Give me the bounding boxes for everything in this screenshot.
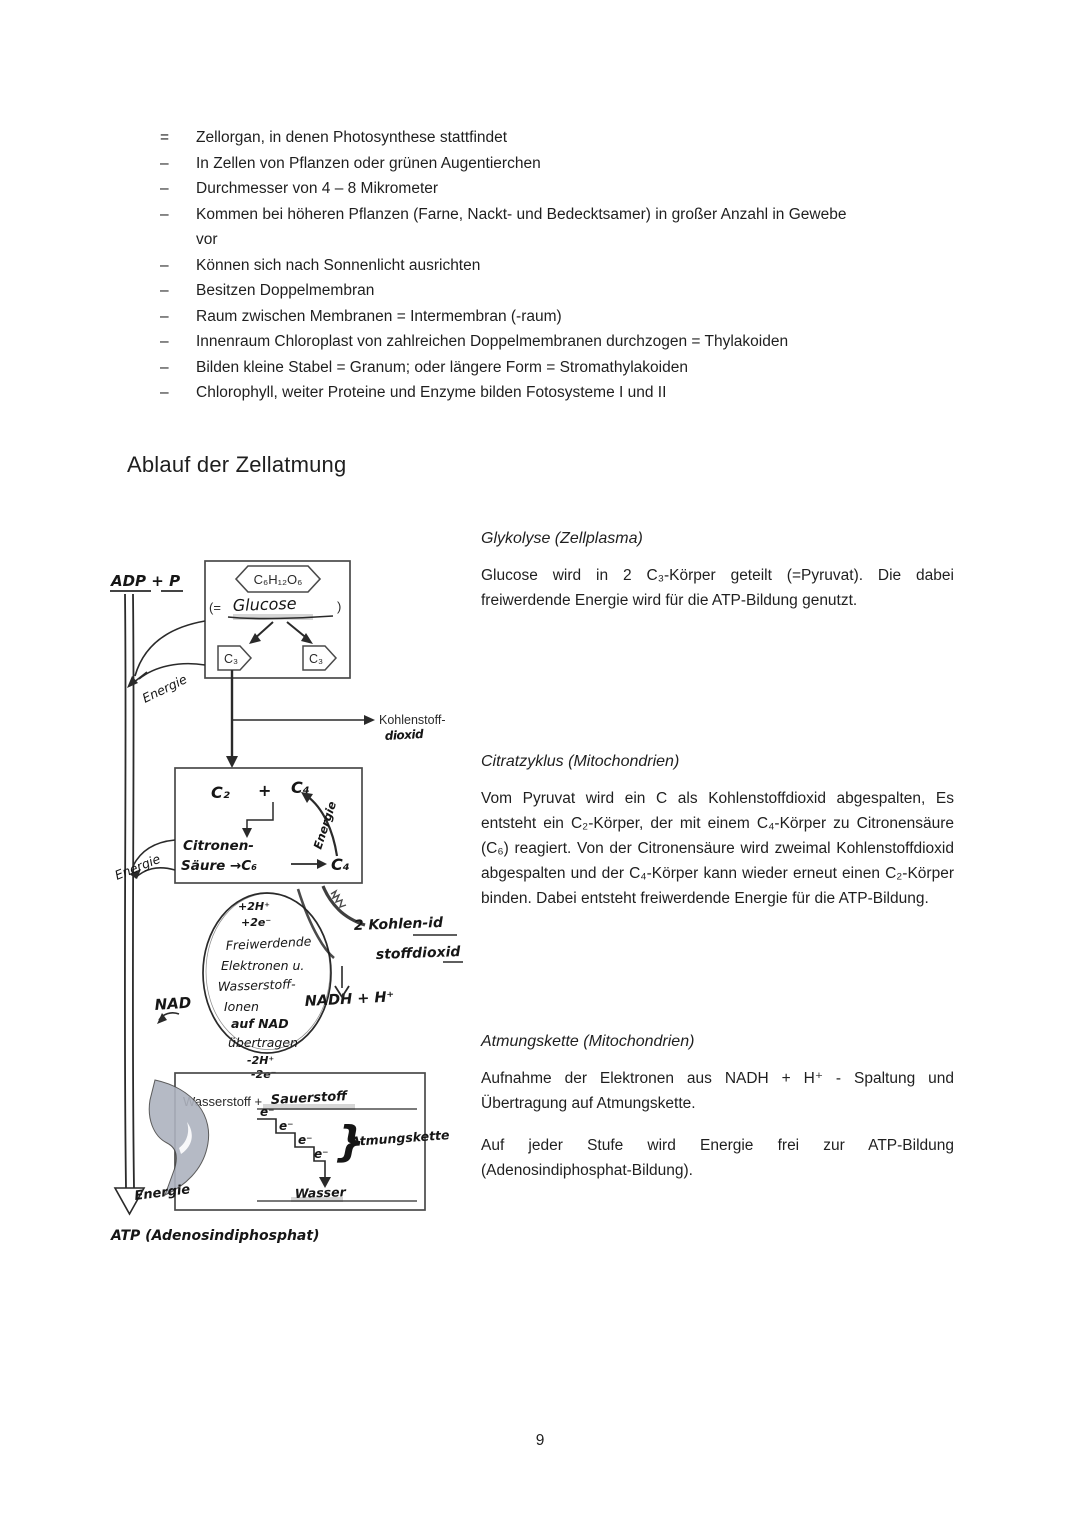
glucose-formula: C₆H₁₂O₆	[254, 572, 303, 587]
section-atmungskette: Atmungskette (Mitochondrien) Aufnahme de…	[481, 1033, 954, 1200]
oval-text-7: -2H⁺	[247, 1054, 274, 1067]
list-item: –Kommen bei höheren Pflanzen (Farne, Nac…	[160, 202, 960, 253]
list-item: –Chlorophyll, weiter Proteine und Enzyme…	[160, 380, 960, 406]
section-citratzyklus: Citratzyklus (Mitochondrien) Vom Pyruvat…	[481, 753, 954, 928]
glucose-open: (=	[209, 600, 221, 615]
atp-label: ATP (Adenosindiphosphat)	[110, 1228, 319, 1244]
citrat-c2: C₂	[211, 783, 230, 802]
adp-label: ADP + P	[110, 572, 180, 590]
section-title: Citratzyklus (Mitochondrien)	[481, 753, 954, 771]
energie-funnel-1: Energie	[127, 621, 205, 706]
co2-line-2: stoffdioxid	[376, 944, 462, 963]
oval-text-8: -2e⁻	[251, 1068, 277, 1081]
energie-label-1: Energie	[140, 671, 190, 706]
atmungskette-box: Wasserstoff + Sauerstoff e⁻ e⁻ e⁻ e⁻ } A…	[175, 1073, 450, 1210]
citronen-c4: C₄	[331, 855, 350, 874]
list-text: Zellorgan, in denen Photosynthese stattf…	[196, 125, 960, 151]
zellatmung-diagram: ADP + P C₆H₁₂O₆ (= Glucose ) C₃ C₃	[95, 548, 465, 1248]
bullet-list: =Zellorgan, in denen Photosynthese statt…	[160, 125, 960, 406]
electron-3: e⁻	[298, 1133, 312, 1147]
plus-2e-label: +2e⁻	[241, 916, 271, 929]
energie-label-3: Energie	[134, 1182, 192, 1204]
section-paragraph: Aufnahme der Elektronen aus NADH + H⁺ - …	[481, 1066, 954, 1116]
oval-text-4: Ionen	[224, 999, 259, 1014]
wasser-label: Wasser	[295, 1184, 347, 1201]
list-text: Chlorophyll, weiter Proteine und Enzyme …	[196, 380, 960, 406]
list-text: Innenraum Chloroplast von zahlreichen Do…	[196, 329, 960, 355]
page-number: 9	[0, 1432, 1080, 1450]
page-title: Ablauf der Zellatmung	[127, 452, 346, 478]
list-item: –Können sich nach Sonnenlicht ausrichten	[160, 253, 960, 279]
list-marker: –	[160, 329, 196, 355]
list-item: –Bilden kleine Stabel = Granum; oder län…	[160, 355, 960, 381]
list-text: Kommen bei höheren Pflanzen (Farne, Nack…	[196, 202, 960, 253]
list-marker: =	[160, 125, 196, 151]
electron-4: e⁻	[314, 1147, 328, 1161]
nad-label: NAD	[154, 993, 192, 1014]
citratzyklus-box: C₂ + C₄ Citronen- Säure →C₆ C₄ Energie	[175, 768, 362, 883]
list-text: Besitzen Doppelmembran	[196, 278, 960, 304]
list-text: In Zellen von Pflanzen oder grünen Augen…	[196, 151, 960, 177]
c3-left-label: C₃	[224, 652, 238, 666]
oval-text-6: übertragen	[228, 1035, 298, 1050]
section-paragraph: Glucose wird in 2 C₃-Körper geteilt (=Py…	[481, 563, 954, 613]
section-glykolyse: Glykolyse (Zellplasma) Glucose wird in 2…	[481, 530, 954, 630]
electron-1: e⁻	[260, 1105, 274, 1119]
list-marker: –	[160, 202, 196, 253]
section-paragraph: Vom Pyruvat wird ein C als Kohlenstoffdi…	[481, 786, 954, 911]
list-text: Durchmesser von 4 – 8 Mikrometer	[196, 176, 960, 202]
co2-output-label: 2 Kohlen-id stoffdioxid	[354, 915, 463, 963]
citronen-line1: Citronen-	[183, 838, 254, 854]
section-paragraph: Auf jeder Stufe wird Energie frei zur AT…	[481, 1133, 954, 1183]
list-marker: –	[160, 278, 196, 304]
oval-text-2: Elektronen u.	[221, 958, 304, 973]
list-text: Können sich nach Sonnenlicht ausrichten	[196, 253, 960, 279]
plus-2h-label: +2H⁺	[238, 900, 270, 913]
list-text: Bilden kleine Stabel = Granum; oder läng…	[196, 355, 960, 381]
energie-label-2: Energie	[113, 851, 163, 883]
section-title: Glykolyse (Zellplasma)	[481, 530, 954, 548]
dioxid-label: dioxid	[384, 727, 424, 743]
co2-line-1: 2 Kohlen-id	[354, 915, 445, 934]
list-item: –Innenraum Chloroplast von zahlreichen D…	[160, 329, 960, 355]
glucose-close: )	[337, 599, 341, 614]
oval-text-1: Freiwerdende	[225, 934, 312, 953]
glucose-name: Glucose	[232, 594, 297, 615]
list-item: –Besitzen Doppelmembran	[160, 278, 960, 304]
list-marker: –	[160, 355, 196, 381]
list-item: –Raum zwischen Membranen = Intermembran …	[160, 304, 960, 330]
pyruvat-flow: Kohlenstoff- dioxid	[226, 670, 445, 768]
list-item: –In Zellen von Pflanzen oder grünen Auge…	[160, 151, 960, 177]
energie-funnel-2: Energie	[113, 840, 175, 883]
section-title: Atmungskette (Mitochondrien)	[481, 1033, 954, 1051]
list-marker: –	[160, 176, 196, 202]
citrat-plus: +	[258, 781, 271, 800]
list-item: =Zellorgan, in denen Photosynthese statt…	[160, 125, 960, 151]
kohlenstoff-label: Kohlenstoff-	[379, 713, 445, 727]
document-page: =Zellorgan, in denen Photosynthese statt…	[0, 0, 1080, 1527]
list-marker: –	[160, 304, 196, 330]
glykolyse-box: C₆H₁₂O₆ (= Glucose ) C₃ C₃	[205, 561, 350, 678]
list-marker: –	[160, 380, 196, 406]
electron-2: e⁻	[279, 1119, 293, 1133]
list-text: Raum zwischen Membranen = Intermembran (…	[196, 304, 960, 330]
oval-text-3: Wasserstoff-	[218, 976, 297, 994]
list-item: –Durchmesser von 4 – 8 Mikrometer	[160, 176, 960, 202]
list-marker: –	[160, 151, 196, 177]
c3-right-label: C₃	[309, 652, 323, 666]
oval-text-5: auf NAD	[231, 1016, 289, 1031]
citronen-line2: Säure →C₆	[181, 858, 257, 874]
nadh-label: NADH + H⁺	[304, 989, 394, 1010]
list-marker: –	[160, 253, 196, 279]
nad-cycle: +2H⁺ +2e⁻ Freiwerdende Elektronen u. Was…	[154, 886, 395, 1081]
energy-channel	[115, 594, 144, 1214]
